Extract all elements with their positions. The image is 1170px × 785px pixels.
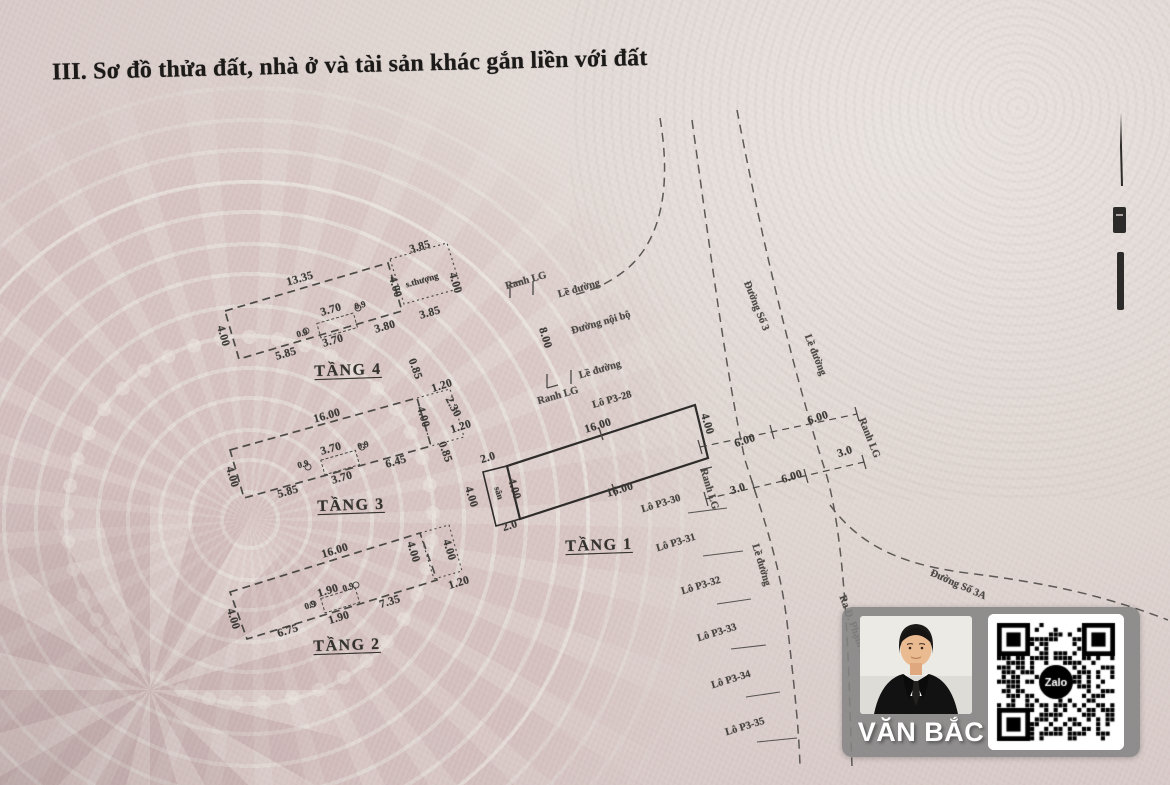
agent-photo bbox=[860, 616, 972, 714]
agent-name: VĂN BẮC bbox=[846, 717, 996, 748]
lot-division-ticks bbox=[688, 508, 797, 742]
floor-label-tang-1: TẦNG 1 bbox=[565, 536, 633, 556]
road-corner-arc bbox=[830, 505, 1168, 620]
floor-label-tang-3: TẦNG 3 bbox=[317, 496, 385, 516]
floor-label-tang-2: TẦNG 2 bbox=[313, 636, 381, 656]
realtor-watermark-card: VĂN BẮC bbox=[842, 607, 1140, 757]
boundary-ticks bbox=[510, 281, 712, 470]
zalo-qr-code bbox=[988, 614, 1124, 750]
measure-line-1 bbox=[700, 414, 857, 447]
page-edge-marks bbox=[1113, 112, 1126, 310]
road-curve-inner bbox=[570, 118, 665, 296]
floor-label-tang-4: TẦNG 4 bbox=[314, 361, 382, 381]
certificate-page: III. Sơ đồ thửa đất, nhà ở và tài sản kh… bbox=[0, 0, 1170, 785]
